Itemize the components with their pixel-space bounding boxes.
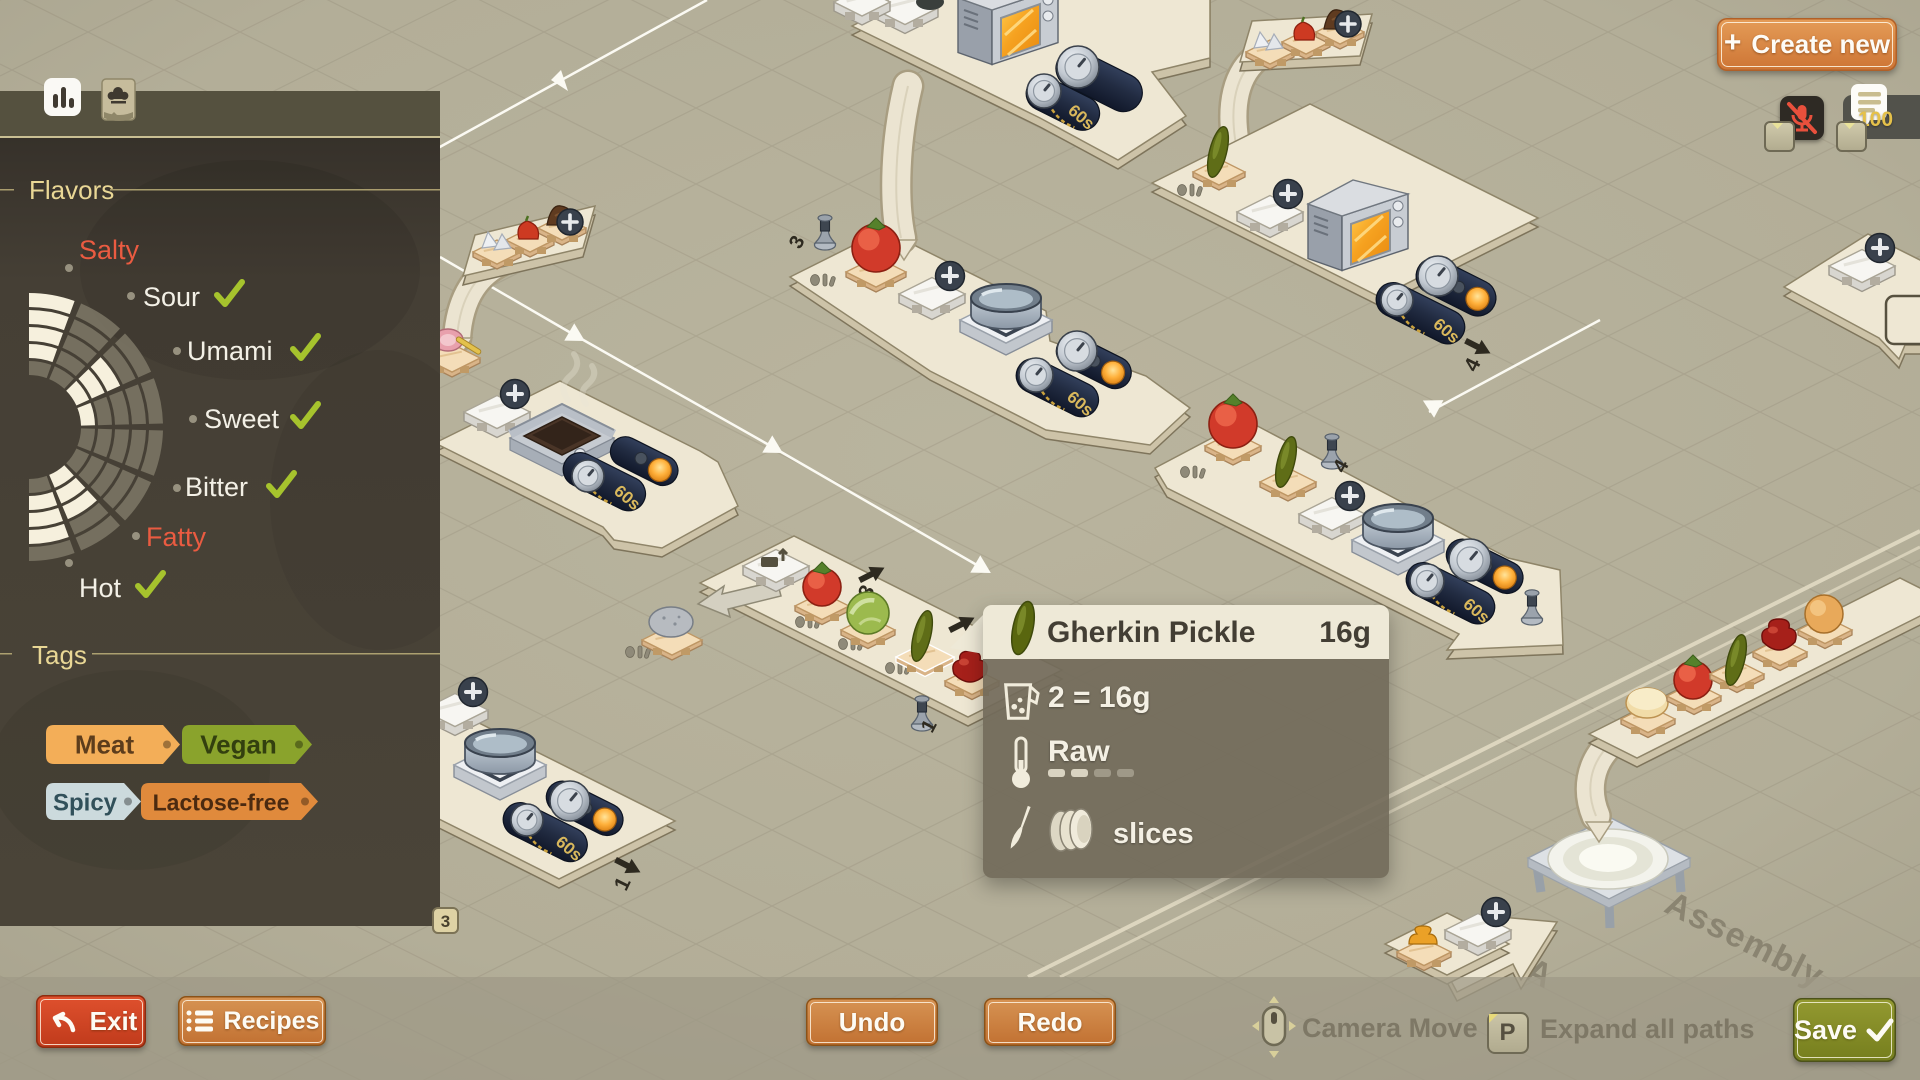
svg-text:Sour: Sour xyxy=(143,282,200,312)
svg-text:Sweet: Sweet xyxy=(204,404,280,434)
svg-text:3: 3 xyxy=(441,912,450,931)
svg-text:Fatty: Fatty xyxy=(146,522,207,552)
svg-text:Spicy: Spicy xyxy=(53,790,118,817)
svg-text:Vegan: Vegan xyxy=(200,730,277,760)
svg-text:Lactose-free: Lactose-free xyxy=(153,790,290,816)
svg-text:Salty: Salty xyxy=(79,235,140,265)
svg-text:Umami: Umami xyxy=(187,336,273,366)
svg-text:Flavors: Flavors xyxy=(29,175,114,205)
svg-text:Meat: Meat xyxy=(75,730,135,760)
svg-text:Hot: Hot xyxy=(79,573,122,603)
svg-text:Bitter: Bitter xyxy=(185,472,248,502)
svg-text:Tags: Tags xyxy=(32,640,87,670)
